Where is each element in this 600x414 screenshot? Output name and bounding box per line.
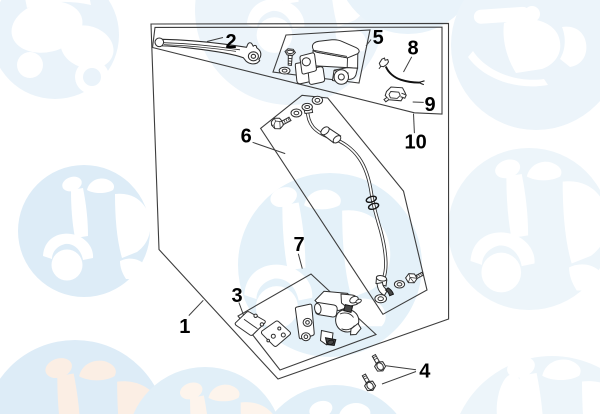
svg-text:1: 1 [179,316,190,338]
svg-text:9: 9 [424,94,435,116]
svg-text:8: 8 [408,37,419,59]
svg-text:3: 3 [231,285,242,307]
svg-text:4: 4 [419,360,431,382]
svg-text:6: 6 [241,126,252,148]
svg-text:10: 10 [404,131,426,153]
svg-text:5: 5 [373,27,384,49]
svg-text:7: 7 [293,234,304,256]
svg-text:2: 2 [225,31,236,53]
